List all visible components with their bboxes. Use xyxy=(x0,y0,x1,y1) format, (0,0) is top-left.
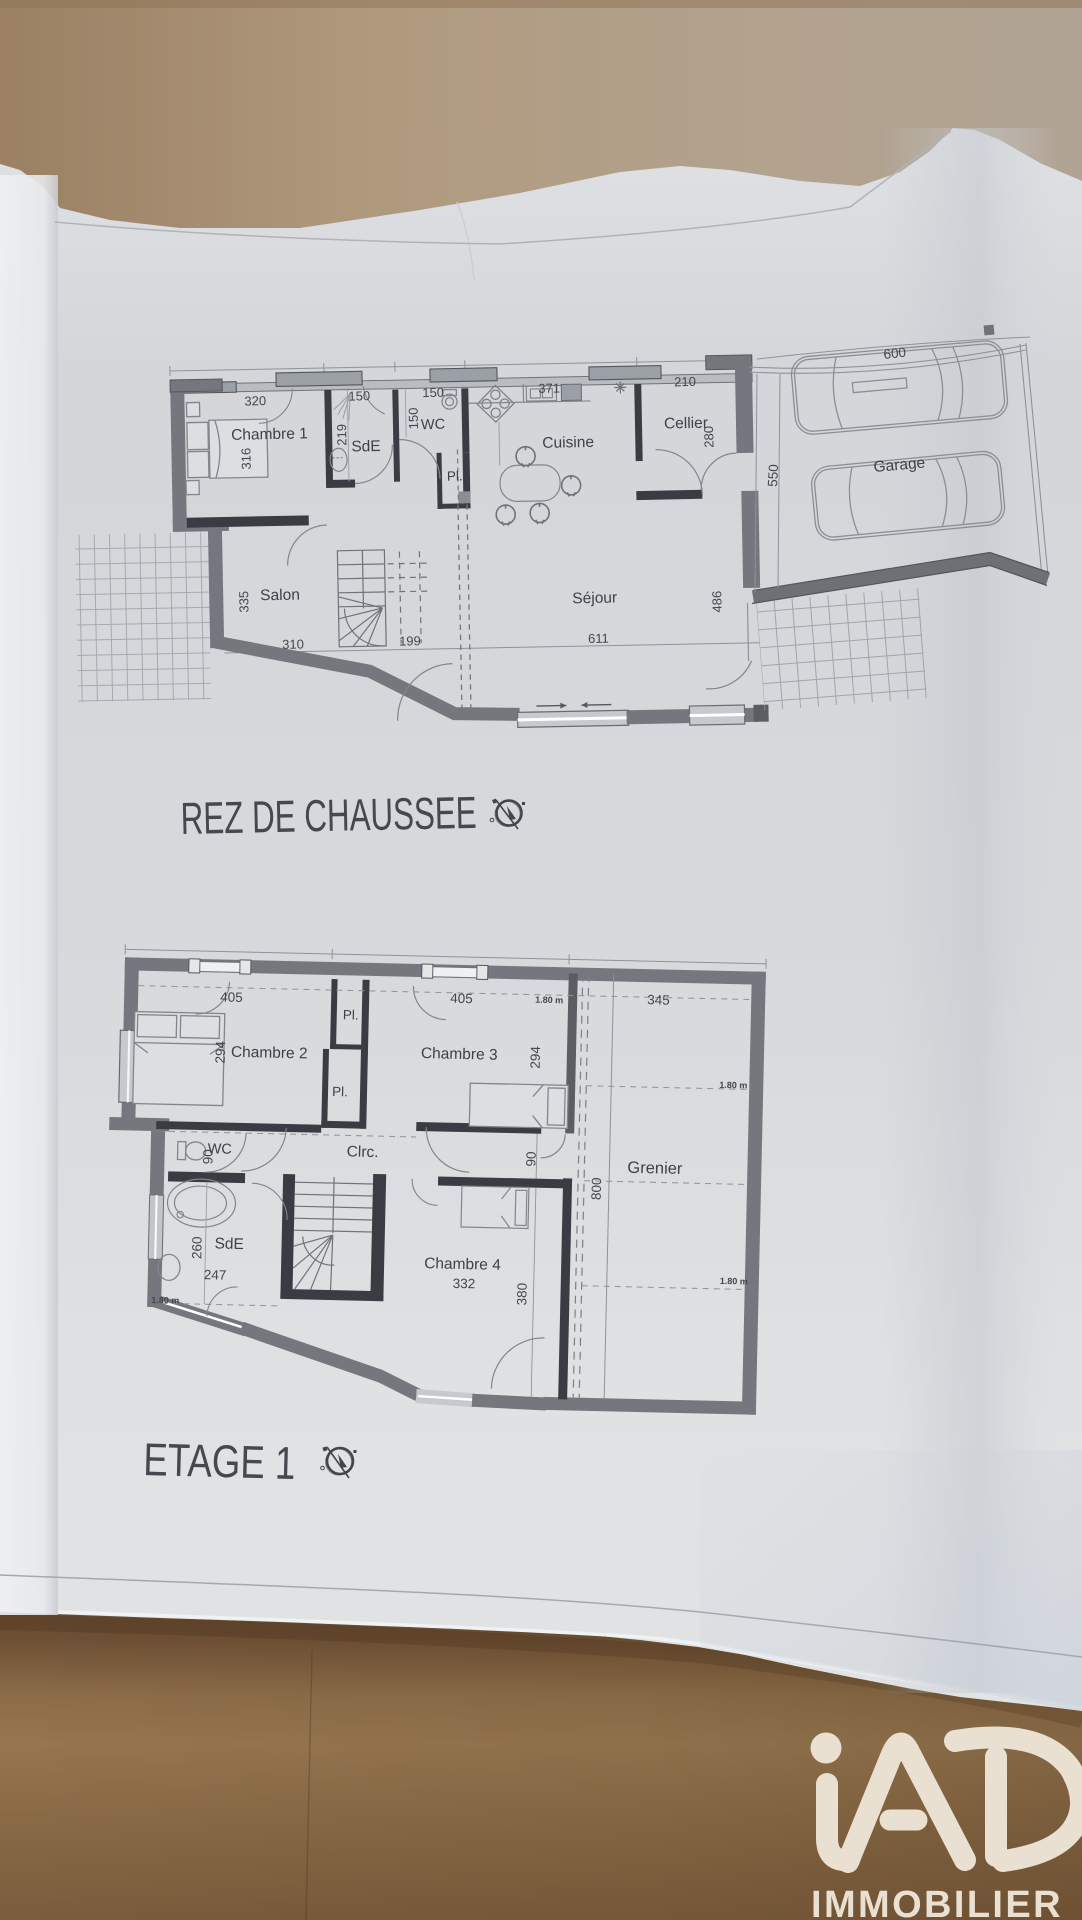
svg-text:Chambre 2: Chambre 2 xyxy=(231,1044,308,1063)
svg-text:WC: WC xyxy=(421,417,445,433)
svg-text:294: 294 xyxy=(528,1045,544,1068)
svg-text:1.80 m: 1.80 m xyxy=(535,995,563,1006)
svg-text:219: 219 xyxy=(334,424,349,446)
svg-text:150: 150 xyxy=(406,407,421,429)
svg-text:1.80 m: 1.80 m xyxy=(719,1080,747,1091)
svg-text:Séjour: Séjour xyxy=(572,589,617,607)
svg-text:Chambre 1: Chambre 1 xyxy=(231,425,308,443)
svg-text:SdE: SdE xyxy=(351,438,381,456)
svg-text:Salon: Salon xyxy=(260,587,300,605)
svg-text:310: 310 xyxy=(282,636,304,651)
svg-text:IMMOBILIER: IMMOBILIER xyxy=(811,1884,1063,1920)
svg-text:ETAGE 1: ETAGE 1 xyxy=(143,1433,296,1489)
svg-text:800: 800 xyxy=(589,1177,605,1200)
svg-text:SdE: SdE xyxy=(214,1235,244,1253)
svg-text:210: 210 xyxy=(674,374,696,389)
svg-text:380: 380 xyxy=(514,1283,530,1306)
svg-text:Cellier: Cellier xyxy=(664,415,708,433)
svg-text:Chambre 4: Chambre 4 xyxy=(424,1255,501,1274)
svg-text:345: 345 xyxy=(647,992,670,1008)
svg-text:335: 335 xyxy=(236,591,251,613)
svg-text:Cuisine: Cuisine xyxy=(542,434,594,452)
svg-text:611: 611 xyxy=(588,631,609,646)
svg-text:Pl.: Pl. xyxy=(447,468,463,483)
svg-text:199: 199 xyxy=(399,633,421,648)
svg-text:REZ DE CHAUSSEE: REZ DE CHAUSSEE xyxy=(180,787,477,844)
svg-text:371: 371 xyxy=(538,381,560,396)
svg-text:600: 600 xyxy=(883,345,907,362)
svg-text:294: 294 xyxy=(213,1040,229,1063)
svg-text:260: 260 xyxy=(189,1236,205,1259)
svg-text:405: 405 xyxy=(220,989,243,1005)
svg-text:247: 247 xyxy=(204,1267,227,1283)
svg-text:Chambre 3: Chambre 3 xyxy=(421,1045,498,1064)
svg-text:150: 150 xyxy=(348,388,370,403)
svg-text:Grenier: Grenier xyxy=(627,1159,683,1178)
svg-text:150: 150 xyxy=(422,385,444,400)
svg-text:332: 332 xyxy=(453,1276,476,1292)
svg-text:316: 316 xyxy=(238,448,253,470)
svg-text:Pl.: Pl. xyxy=(332,1084,348,1099)
svg-text:550: 550 xyxy=(765,464,781,487)
svg-text:1.80 m: 1.80 m xyxy=(151,1295,179,1306)
svg-text:WC: WC xyxy=(208,1141,233,1158)
svg-text:Clrc.: Clrc. xyxy=(346,1143,378,1161)
svg-text:405: 405 xyxy=(450,991,473,1007)
svg-text:1.80 m: 1.80 m xyxy=(720,1276,748,1287)
svg-text:Pl.: Pl. xyxy=(343,1007,359,1022)
svg-text:486: 486 xyxy=(709,591,724,613)
svg-text:90: 90 xyxy=(523,1151,538,1166)
svg-text:320: 320 xyxy=(244,393,266,408)
